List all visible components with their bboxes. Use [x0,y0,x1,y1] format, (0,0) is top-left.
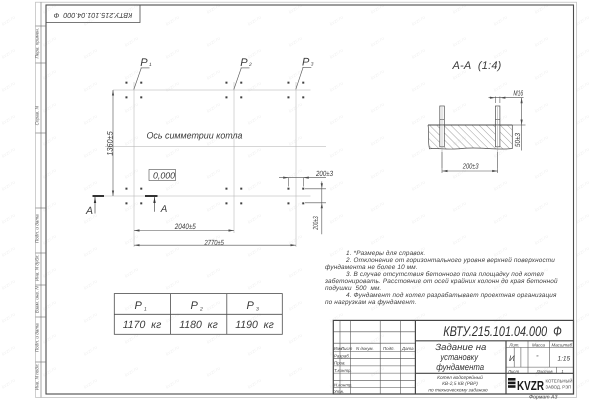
svg-text:1:15: 1:15 [558,356,571,363]
svg-text:Задание на: Задание на [435,342,486,352]
svg-text:2. Отклонение от горизонтально: 2. Отклонение от горизонтального уровня … [345,257,555,264]
svg-text:И: И [509,354,515,363]
svg-text:200±3: 200±3 [315,169,333,178]
svg-text:0,000: 0,000 [153,170,175,180]
svg-text:Перв. примен.: Перв. примен. [35,28,40,59]
svg-text:A: A [85,205,93,217]
svg-text:2770±5: 2770±5 [204,238,225,247]
svg-text:А-А (1:4): А-А (1:4) [451,60,501,72]
svg-text:Масса: Масса [532,342,546,347]
svg-text:установку: установку [440,352,479,362]
svg-text:Взам. инв. N: Взам. инв. N [35,286,40,313]
svg-text:1: 1 [144,307,147,313]
svg-text:200±3: 200±3 [462,162,479,171]
svg-text:Формат А3: Формат А3 [529,395,557,400]
svg-text:A: A [160,204,168,215]
svg-text:забетонировать. Расстояние от: забетонировать. Расстояние от осей крайн… [324,278,558,285]
svg-text:Инв. N подл.: Инв. N подл. [35,363,40,390]
svg-text:М16: М16 [513,88,523,97]
svg-text:КВ-2,5 КВ (РВР): КВ-2,5 КВ (РВР) [442,381,478,387]
svg-text:50±3: 50±3 [513,132,522,147]
svg-text:Лит.: Лит. [508,342,519,347]
svg-text:Дата: Дата [401,346,414,351]
svg-text:Подп.: Подп. [383,346,395,351]
svg-text:Листов: Листов [536,369,554,374]
svg-text:2: 2 [248,62,252,68]
svg-text:КВТУ.215.101.04.000 Ф: КВТУ.215.101.04.000 Ф [53,11,132,20]
svg-text:Утв.: Утв. [334,389,344,394]
svg-text:Ось симметрии котла: Ось симметрии котла [147,131,243,141]
svg-text:1170 кг: 1170 кг [123,319,162,331]
svg-text:P: P [302,57,310,69]
svg-text:Н.контр.: Н.контр. [334,382,353,387]
svg-text:3. В случае отсутствия бетонно: 3. В случае отсутствия бетонного пола пл… [346,271,544,278]
svg-text:подушки 500 мм.: подушки 500 мм. [325,285,381,292]
svg-text:KVZR: KVZR [517,378,544,393]
svg-text:-: - [536,351,539,360]
svg-text:Лист: Лист [340,346,353,351]
svg-text:1: 1 [149,62,152,68]
svg-text:Пров.: Пров. [334,361,346,366]
svg-text:Лист: Лист [507,369,520,374]
svg-text:фундамента не более 10 мм.: фундамента не более 10 мм. [325,264,418,271]
svg-text:Т.контр.: Т.контр. [334,368,352,373]
svg-text:P: P [135,300,143,312]
svg-text:Подп. и дата: Подп. и дата [35,323,40,352]
svg-text:1180 кг: 1180 кг [179,319,218,331]
svg-text:3: 3 [256,307,259,313]
svg-text:1360±5: 1360±5 [106,131,115,156]
svg-text:по техническому заданию: по техническому заданию [428,387,488,393]
svg-text:P: P [140,57,148,69]
svg-text:ЗАВОД. РЭП: ЗАВОД. РЭП [546,385,572,390]
svg-text:Котел водогрейный: Котел водогрейный [437,375,483,381]
svg-text:Масштаб: Масштаб [552,342,573,347]
svg-text:Разраб.: Разраб. [334,354,350,359]
svg-text:фундамента: фундамента [436,362,484,372]
svg-text:Справ. N: Справ. N [35,105,40,125]
svg-text:Подп. и дата: Подп. и дата [35,214,40,243]
svg-text:P: P [247,300,255,312]
svg-text:2: 2 [199,307,203,313]
svg-text:2040±5: 2040±5 [174,222,196,231]
svg-text:Инв. N дубл.: Инв. N дубл. [35,254,40,281]
svg-text:1. *Размеры для справок.: 1. *Размеры для справок. [346,250,425,257]
svg-text:N докум.: N докум. [356,346,374,351]
svg-text:по нагрузкам на фундамент.: по нагрузкам на фундамент. [325,299,417,306]
svg-text:P: P [240,57,248,69]
svg-text:КВТУ.215.101.04.000 Ф: КВТУ.215.101.04.000 Ф [443,323,562,339]
svg-text:3: 3 [311,62,314,68]
svg-text:1190 кг: 1190 кг [235,319,274,331]
svg-text:P: P [191,300,199,312]
svg-text:200±3: 200±3 [311,216,320,231]
svg-text:КОТЕЛЬНЫЙ: КОТЕЛЬНЫЙ [546,379,573,384]
svg-text:4. Фундамент под котел разраба: 4. Фундамент под котел разрабатывает про… [346,292,557,299]
